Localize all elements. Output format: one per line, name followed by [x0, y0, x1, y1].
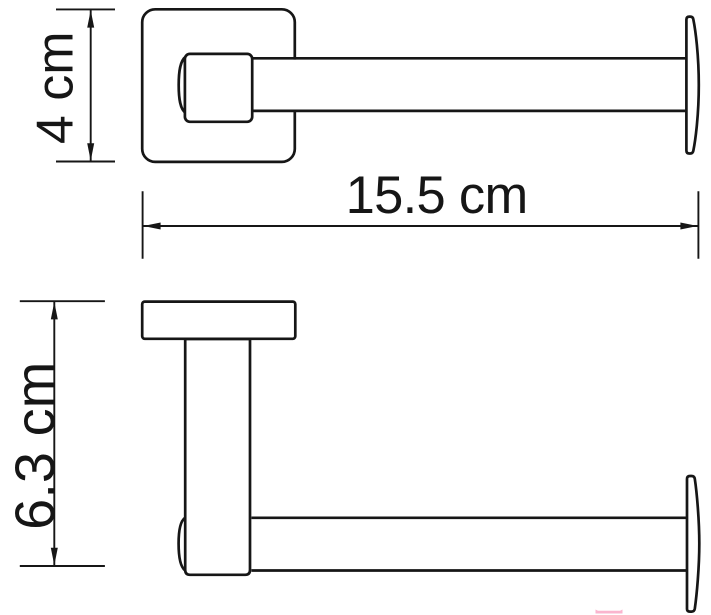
svg-text:6.3 cm: 6.3 cm: [3, 362, 66, 530]
svg-text:4 cm: 4 cm: [27, 31, 85, 144]
svg-text:15.5 cm: 15.5 cm: [346, 166, 528, 225]
